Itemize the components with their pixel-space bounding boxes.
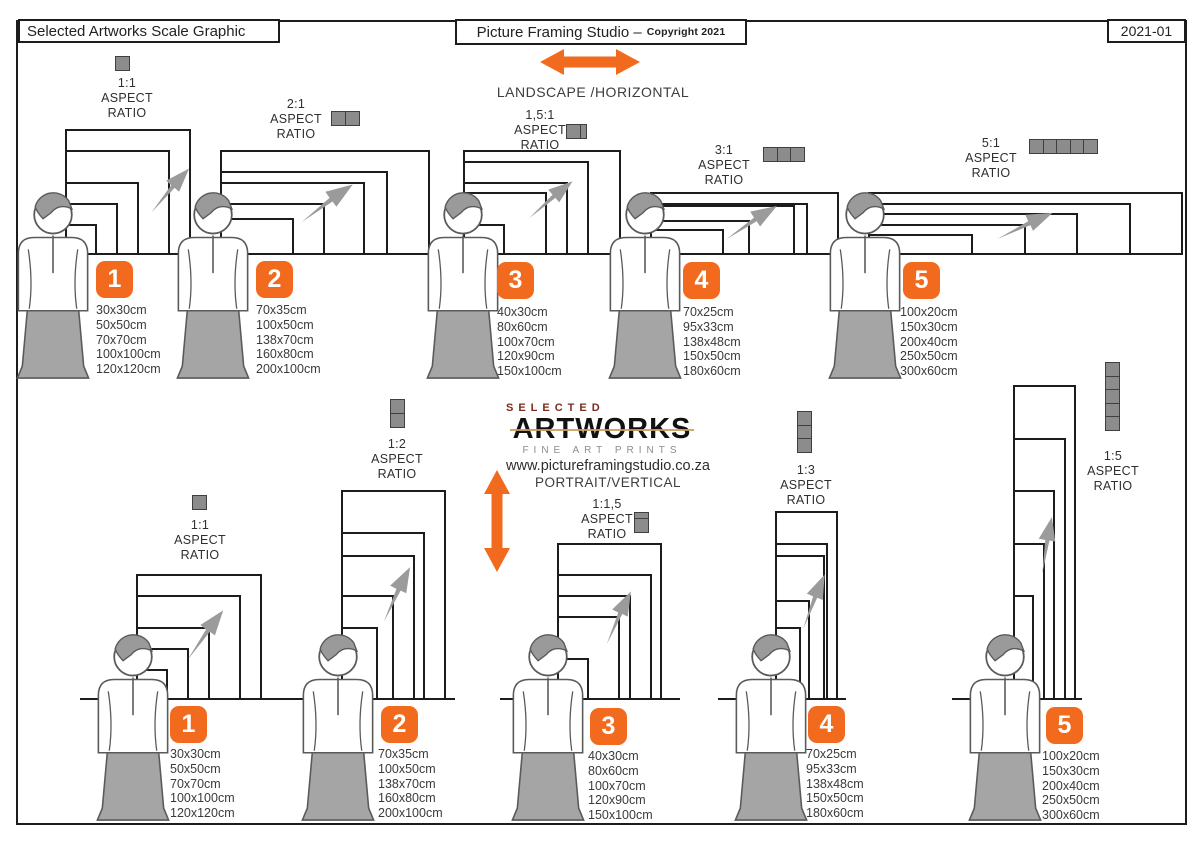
aspect-ratio-label: 1:5ASPECTRATIO xyxy=(1053,449,1173,494)
scale-graphic-page: Selected Artworks Scale Graphic Picture … xyxy=(0,0,1200,842)
size-item: 138x70cm xyxy=(378,777,443,792)
size-item: 200x40cm xyxy=(1042,779,1100,794)
aspect-ratio-line: RATIO xyxy=(236,127,356,142)
person-figure xyxy=(726,634,816,822)
edition-code: 2021-01 xyxy=(1121,23,1172,39)
sizes-list: 30x30cm50x50cm70x70cm100x100cm120x120cm xyxy=(170,747,235,821)
size-item: 150x50cm xyxy=(806,791,864,806)
logo-subtitle-text: FINE ART PRINTS xyxy=(502,445,702,456)
aspect-icon xyxy=(115,56,130,71)
size-item: 150x30cm xyxy=(900,320,958,335)
size-item: 250x50cm xyxy=(900,349,958,364)
size-item: 70x70cm xyxy=(170,777,235,792)
size-item: 180x60cm xyxy=(806,806,864,821)
horizontal-double-arrow-icon xyxy=(540,47,640,77)
size-item: 138x48cm xyxy=(683,335,741,350)
size-item: 100x70cm xyxy=(497,335,562,350)
aspect-icon-cell xyxy=(790,147,805,162)
brand-logo: SELECTED ARTWORKS FINE ART PRINTS xyxy=(502,402,702,456)
landscape-section-label: LANDSCAPE /HORIZONTAL xyxy=(493,84,693,100)
size-item: 150x30cm xyxy=(1042,764,1100,779)
aspect-ratio-line: RATIO xyxy=(746,493,866,508)
size-item: 80x60cm xyxy=(497,320,562,335)
aspect-icon xyxy=(1105,362,1120,431)
size-item: 100x20cm xyxy=(1042,749,1100,764)
aspect-ratio-line: RATIO xyxy=(67,106,187,121)
size-item: 80x60cm xyxy=(588,764,653,779)
studio-box: Picture Framing Studio – Copyright 2021 xyxy=(455,19,747,45)
size-item: 300x60cm xyxy=(1042,808,1100,823)
size-item: 120x120cm xyxy=(170,806,235,821)
group-number-badge: 5 xyxy=(903,262,940,299)
aspect-ratio-line: 1:3 xyxy=(746,463,866,478)
aspect-ratio-line: 1:1,5 xyxy=(547,497,667,512)
person-figure xyxy=(600,192,690,380)
aspect-ratio-line: RATIO xyxy=(547,527,667,542)
group-number-badge: 3 xyxy=(590,708,627,745)
aspect-icon-cell xyxy=(345,111,360,126)
aspect-icon xyxy=(797,411,812,453)
sizes-list: 70x35cm100x50cm138x70cm160x80cm200x100cm xyxy=(378,747,443,821)
aspect-icon-cell xyxy=(192,495,207,510)
aspect-icon-cell xyxy=(634,518,649,533)
aspect-ratio-line: 2:1 xyxy=(236,97,356,112)
aspect-ratio-line: ASPECT xyxy=(140,533,260,548)
sizes-list: 100x20cm150x30cm200x40cm250x50cm300x60cm xyxy=(900,305,958,379)
aspect-ratio-line: ASPECT xyxy=(337,452,457,467)
size-item: 120x90cm xyxy=(588,793,653,808)
aspect-icon xyxy=(1029,139,1098,154)
size-item: 150x100cm xyxy=(588,808,653,823)
size-item: 70x70cm xyxy=(96,333,161,348)
size-item: 138x48cm xyxy=(806,777,864,792)
aspect-icon-cell xyxy=(390,413,405,428)
aspect-ratio-line: 1:1 xyxy=(67,76,187,91)
aspect-ratio-line: RATIO xyxy=(337,467,457,482)
website-url: www.pictureframingstudio.co.za xyxy=(496,458,720,474)
sizes-list: 70x25cm95x33cm138x48cm150x50cm180x60cm xyxy=(683,305,741,379)
aspect-ratio-line: ASPECT xyxy=(67,91,187,106)
size-item: 100x100cm xyxy=(96,347,161,362)
size-item: 70x35cm xyxy=(378,747,443,762)
size-item: 120x90cm xyxy=(497,349,562,364)
group-number-badge: 3 xyxy=(497,262,534,299)
aspect-icon-cell xyxy=(1105,416,1120,431)
size-item: 70x25cm xyxy=(683,305,741,320)
aspect-icon xyxy=(390,399,405,428)
size-item: 100x20cm xyxy=(900,305,958,320)
size-item: 160x80cm xyxy=(378,791,443,806)
size-item: 50x50cm xyxy=(96,318,161,333)
page-title: Selected Artworks Scale Graphic xyxy=(27,23,245,40)
aspect-icon xyxy=(331,111,360,126)
size-item: 95x33cm xyxy=(806,762,864,777)
size-item: 200x40cm xyxy=(900,335,958,350)
size-item: 180x60cm xyxy=(683,364,741,379)
group-number-badge: 1 xyxy=(170,706,207,743)
aspect-icon xyxy=(192,495,207,510)
aspect-ratio-line: 1:1 xyxy=(140,518,260,533)
sizes-list: 40x30cm80x60cm100x70cm120x90cm150x100cm xyxy=(497,305,562,379)
sizes-list: 40x30cm80x60cm100x70cm120x90cm150x100cm xyxy=(588,749,653,823)
person-figure xyxy=(88,634,178,822)
aspect-icon-cell xyxy=(797,438,812,453)
size-item: 138x70cm xyxy=(256,333,321,348)
size-item: 200x100cm xyxy=(256,362,321,377)
size-item: 200x100cm xyxy=(378,806,443,821)
aspect-icon xyxy=(634,512,649,533)
portrait-section-label: PORTRAIT/VERTICAL xyxy=(496,475,720,490)
size-item: 40x30cm xyxy=(497,305,562,320)
size-item: 150x100cm xyxy=(497,364,562,379)
group-number-badge: 2 xyxy=(381,706,418,743)
size-item: 95x33cm xyxy=(683,320,741,335)
aspect-ratio-line: RATIO xyxy=(664,173,784,188)
sizes-list: 100x20cm150x30cm200x40cm250x50cm300x60cm xyxy=(1042,749,1100,823)
copyright-text: Copyright 2021 xyxy=(647,26,726,38)
person-figure xyxy=(960,634,1050,822)
aspect-ratio-label: 1:1ASPECTRATIO xyxy=(67,76,187,121)
size-item: 100x50cm xyxy=(378,762,443,777)
aspect-ratio-label: 1:2ASPECTRATIO xyxy=(337,437,457,482)
size-item: 30x30cm xyxy=(170,747,235,762)
aspect-ratio-line: RATIO xyxy=(1053,479,1173,494)
group-number-badge: 4 xyxy=(808,706,845,743)
person-figure xyxy=(168,192,258,380)
aspect-ratio-line: 1:2 xyxy=(337,437,457,452)
aspect-ratio-line: ASPECT xyxy=(746,478,866,493)
aspect-icon-cell xyxy=(115,56,130,71)
sizes-list: 70x25cm95x33cm138x48cm150x50cm180x60cm xyxy=(806,747,864,821)
logo-strike-line xyxy=(510,429,694,431)
group-number-badge: 5 xyxy=(1046,707,1083,744)
person-figure xyxy=(8,192,98,380)
aspect-ratio-label: 1:1ASPECTRATIO xyxy=(140,518,260,563)
person-figure xyxy=(293,634,383,822)
aspect-ratio-line: 1,5:1 xyxy=(480,108,600,123)
size-item: 250x50cm xyxy=(1042,793,1100,808)
logo-artworks-text: ARTWORKS xyxy=(502,414,702,444)
size-item: 50x50cm xyxy=(170,762,235,777)
group-number-badge: 4 xyxy=(683,262,720,299)
aspect-icon-cell xyxy=(1083,139,1098,154)
aspect-ratio-line: ASPECT xyxy=(1053,464,1173,479)
size-item: 100x100cm xyxy=(170,791,235,806)
aspect-ratio-line: RATIO xyxy=(931,166,1051,181)
size-item: 30x30cm xyxy=(96,303,161,318)
title-box: Selected Artworks Scale Graphic xyxy=(18,19,280,43)
size-item: 150x50cm xyxy=(683,349,741,364)
size-item: 70x35cm xyxy=(256,303,321,318)
size-item: 160x80cm xyxy=(256,347,321,362)
aspect-ratio-label: 1:1,5ASPECTRATIO xyxy=(547,497,667,542)
person-figure xyxy=(503,634,593,822)
size-item: 100x50cm xyxy=(256,318,321,333)
person-figure xyxy=(418,192,508,380)
studio-title: Picture Framing Studio – xyxy=(477,24,642,41)
aspect-ratio-line: 1:5 xyxy=(1053,449,1173,464)
aspect-icon xyxy=(763,147,805,162)
aspect-ratio-line: ASPECT xyxy=(547,512,667,527)
aspect-icon-cell xyxy=(580,124,588,139)
aspect-icon xyxy=(566,124,587,139)
edition-box: 2021-01 xyxy=(1107,19,1186,43)
size-item: 100x70cm xyxy=(588,779,653,794)
aspect-ratio-line: RATIO xyxy=(480,138,600,153)
size-item: 120x120cm xyxy=(96,362,161,377)
person-figure xyxy=(820,192,910,380)
size-item: 40x30cm xyxy=(588,749,653,764)
group-number-badge: 1 xyxy=(96,261,133,298)
sizes-list: 30x30cm50x50cm70x70cm100x100cm120x120cm xyxy=(96,303,161,377)
size-item: 70x25cm xyxy=(806,747,864,762)
aspect-ratio-label: 1:3ASPECTRATIO xyxy=(746,463,866,508)
sizes-list: 70x35cm100x50cm138x70cm160x80cm200x100cm xyxy=(256,303,321,377)
size-item: 300x60cm xyxy=(900,364,958,379)
aspect-ratio-line: RATIO xyxy=(140,548,260,563)
group-number-badge: 2 xyxy=(256,261,293,298)
